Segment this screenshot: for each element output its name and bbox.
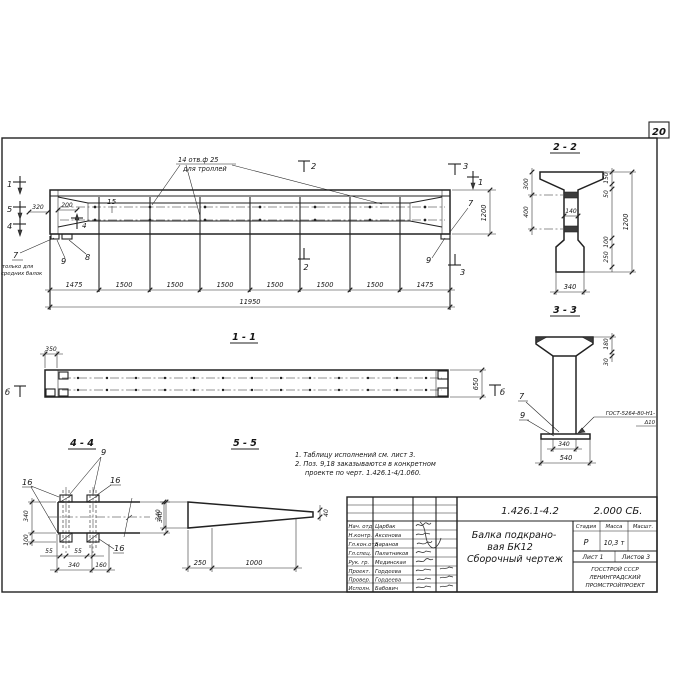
title-block: 1.426.1-4.2 2.000 СБ. Балка подкрано- ва… (347, 497, 657, 592)
dim-1200: 1200 (622, 214, 630, 231)
hole-note-line1: 14 отв.ф 25 (178, 156, 218, 164)
role: Н.контр. (349, 533, 373, 539)
pos-15: 15 (107, 197, 117, 206)
role: Нач. отд (349, 524, 373, 530)
pos-7: 7 (13, 250, 19, 260)
cut-4-label: 4 (7, 221, 12, 231)
dim-340: 340 (155, 509, 162, 521)
dim-1200: 1200 (480, 205, 488, 222)
section33-dims: 180 30 7 9 ГОСТ-5264-80-Н1- Δ10 340 540 (518, 333, 656, 466)
name: Аксенова (374, 533, 401, 539)
drawing-title-line3: Сборочный чертеж (467, 554, 564, 565)
pos-7: 7 (519, 391, 525, 401)
note-line2: 2. Поз. 9,18 заказываются в конкретном (295, 460, 436, 468)
dim-650: 650 (472, 378, 480, 391)
stage-value: Р (584, 537, 589, 547)
note-line3: проекте по черт. 1.426.1-4/1.060. (305, 469, 421, 477)
section44-labels: 9 16 16 16 (22, 447, 124, 553)
dim-340: 340 (564, 283, 577, 291)
dim-350: 350 (45, 346, 57, 353)
role: Гл.спец. (349, 551, 372, 557)
section-3-3: 3 - 3 180 30 7 9 ГОСТ-5264-80-Н1- Δ10 (518, 305, 656, 466)
pos-16-bottom: 16 (114, 543, 124, 553)
dim-seg: 1475 (417, 281, 434, 289)
cut-marks-left: 1 5 4 (7, 176, 26, 236)
mass-value: 10,3 т (604, 539, 625, 547)
dim-340-left: 340 (23, 510, 30, 522)
org-line1: ГОССТРОЙ СССР (591, 566, 639, 573)
section-title: 4 - 4 (69, 438, 94, 449)
name: Палатников (375, 551, 408, 557)
role: Рук. гр. (349, 560, 370, 566)
dim-seg: 1500 (167, 281, 184, 289)
dim-400: 400 (523, 206, 530, 218)
doc-code: 2.000 СБ. (594, 506, 643, 517)
approval-rows: Нач. отд Царбак Н.контр. Аксенова Гл.кон… (349, 524, 409, 592)
trolley-holes (60, 207, 445, 220)
end-dims: 320 200 15 4 (27, 197, 117, 230)
name: Баранов (375, 542, 398, 548)
dim-seg: 1500 (317, 281, 334, 289)
role: Проект. (349, 569, 371, 575)
cut-5-label: 5 (7, 204, 12, 214)
notes: 1. Таблицу исполнений см. лист 3. 2. Поз… (295, 451, 436, 477)
dim-seg: 1500 (116, 281, 133, 289)
elevation-grid (50, 197, 450, 310)
cut-2-top: 2 (311, 161, 316, 171)
dim-160: 160 (95, 562, 107, 569)
dim-200: 200 (61, 202, 73, 209)
cut-4-bottom: 4 (82, 221, 87, 230)
col-scale: Масшт. (633, 524, 653, 530)
pos-9: 9 (61, 256, 66, 266)
dim-seg: 1475 (66, 281, 83, 289)
org-line2: ЛЕНИНГРАДСКИЙ (588, 574, 641, 581)
drawing-canvas: 20 (0, 0, 700, 700)
dim-1000: 1000 (246, 559, 263, 567)
section-title: 1 - 1 (232, 332, 256, 343)
section-1-1: 1 - 1 350 б б 650 (5, 332, 505, 399)
dim-total: 11950 (240, 298, 261, 306)
weld-label-line1: ГОСТ-5264-80-Н1- (606, 411, 655, 417)
dim-250: 250 (603, 251, 610, 263)
section44-dims: 340 100 340 55 55 340 160 (23, 498, 170, 573)
dim-seg: 1500 (217, 281, 234, 289)
section-title: 2 - 2 (553, 142, 577, 153)
section-2-2: 2 - 2 300 400 140 150 50 100 250 1200 (523, 142, 636, 295)
view-mark-left: б (5, 387, 10, 397)
dim-40: 40 (323, 509, 330, 517)
dim-140: 140 (565, 208, 577, 215)
cut-marks-mid: 2 2 3 3 1 (298, 161, 483, 277)
pos-7-right: 7 (468, 198, 474, 208)
note-line1: 1. Таблицу исполнений см. лист 3. (295, 451, 415, 459)
dim-340: 340 (558, 441, 570, 448)
name: Мединская (375, 560, 407, 566)
name: Царбак (375, 524, 396, 530)
section11-dims: 350 б б 650 (5, 346, 505, 399)
dim-340-bottom: 340 (68, 562, 80, 569)
dim-180: 180 (603, 338, 610, 350)
view-mark-right: б (500, 387, 505, 397)
drawing-title-line2: вая БК12 (487, 542, 533, 553)
dim-100: 100 (603, 236, 610, 248)
cut-1-right: 1 (478, 177, 483, 187)
dim-150: 150 (603, 172, 610, 184)
only-note-line2: средних балок (1, 271, 43, 277)
sheet-info: Лист 1 (582, 554, 604, 561)
dim-30: 30 (603, 358, 610, 366)
dim-250: 250 (194, 559, 207, 567)
pos-16-left: 16 (22, 477, 32, 487)
dim-100: 100 (23, 534, 30, 546)
dim-55-b: 55 (74, 548, 82, 555)
dim-seg: 1500 (367, 281, 384, 289)
role: Гл.кон.отд (349, 542, 379, 548)
elevation-view: 14 отв.ф 25 для троллей 1 5 4 320 200 15… (1, 156, 496, 310)
name: Гордеева (375, 569, 401, 575)
dim-540: 540 (560, 454, 573, 462)
dim-55-a: 55 (45, 548, 53, 555)
dim-300: 300 (523, 178, 530, 190)
section22-dims: 300 400 140 150 50 100 250 1200 340 (523, 168, 636, 295)
cut-3-bottom: 3 (460, 267, 465, 277)
weld-label-line2: Δ10 (644, 420, 656, 426)
pos-9: 9 (101, 447, 106, 457)
cut-2-bottom: 2 (303, 262, 308, 272)
drawing-title-line1: Балка подкрано- (472, 530, 557, 541)
sheet-number: 20 (652, 127, 666, 138)
pos-16-right: 16 (110, 475, 120, 485)
pos-9-right: 9 (426, 255, 431, 265)
org-line3: ПРОМСТРОЙПРОЕКТ (586, 582, 646, 589)
name: Бабович (375, 586, 398, 592)
role: Провер. (349, 578, 371, 584)
dim-50: 50 (603, 190, 610, 198)
doc-number: 1.426.1-4.2 (501, 506, 559, 517)
section-title: 3 - 3 (553, 305, 577, 316)
col-mass: Масса (606, 524, 623, 530)
cut-1-label: 1 (7, 179, 12, 189)
dim-320: 320 (32, 204, 44, 211)
only-note-line1: только для (2, 264, 34, 270)
dim-seg: 1500 (267, 281, 284, 289)
hole-note: 14 отв.ф 25 для троллей (152, 156, 382, 216)
name: Гордеева (375, 578, 401, 584)
role: Исполн. (349, 586, 371, 592)
item-labels-left: 7 только для средних балок 9 8 (1, 238, 90, 277)
cut-3-top: 3 (463, 161, 468, 171)
col-stage: Стадия (576, 524, 597, 530)
section-4-4: 4 - 4 9 16 16 16 (22, 438, 170, 573)
hole-note-line2: для троллей (182, 165, 227, 173)
section-title: 5 - 5 (233, 438, 257, 449)
signatures (416, 522, 453, 588)
drawing-sheet: 20 (0, 0, 700, 700)
pos-9: 9 (520, 410, 525, 420)
sheets-info: Листов 3 (621, 554, 650, 561)
